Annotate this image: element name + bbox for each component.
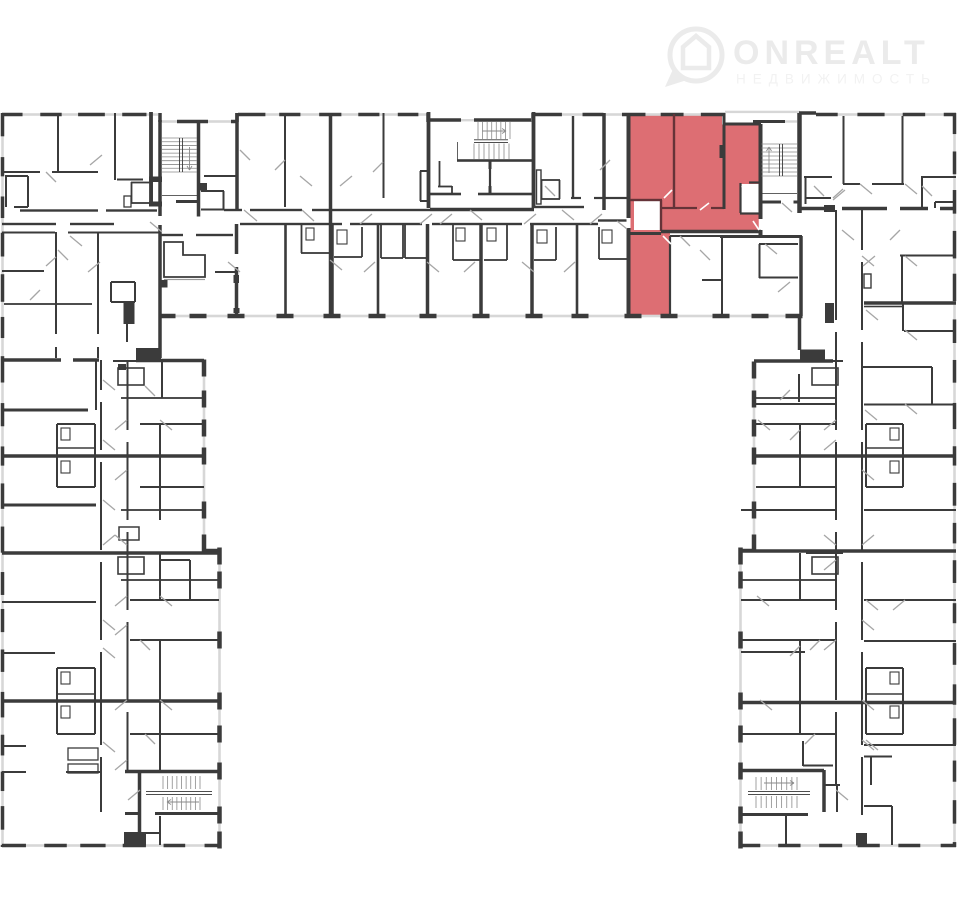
svg-text:НЕДВИЖИМОСТЬ: НЕДВИЖИМОСТЬ: [736, 72, 937, 87]
svg-text:ONREALT: ONREALT: [733, 34, 930, 72]
